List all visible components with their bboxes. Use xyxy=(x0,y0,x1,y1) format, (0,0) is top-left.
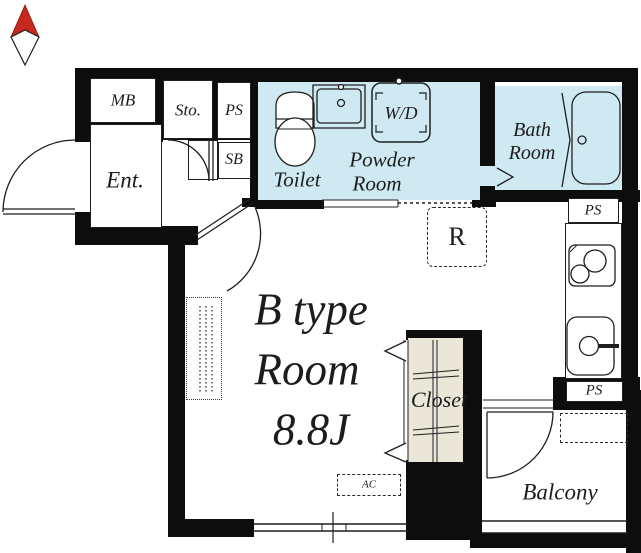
kitchen-counter xyxy=(565,223,622,379)
wall-bath-left-b xyxy=(480,186,495,202)
wall-bottom-left xyxy=(168,519,254,537)
wall-right-upper xyxy=(622,68,638,390)
wall-left-upper xyxy=(75,68,90,140)
label-pipe-space-top: PS xyxy=(225,103,243,119)
wall-balcony-bottom xyxy=(470,533,641,548)
north-compass-icon xyxy=(8,4,42,66)
label-refrigerator: R xyxy=(448,224,465,250)
label-room-word: Room xyxy=(255,348,360,393)
wall-main-left xyxy=(168,235,185,530)
label-ac: AC xyxy=(362,480,376,491)
floor-plan: MB Sto. PS SB Ent. Toilet Powder Room W/… xyxy=(0,0,641,553)
entrance-door xyxy=(3,140,75,214)
label-bath-2: Room xyxy=(509,143,556,163)
balcony-railing xyxy=(482,521,628,533)
label-entrance: Ent. xyxy=(106,169,144,192)
label-shoe-box: SB xyxy=(225,152,243,168)
label-powder-1: Powder xyxy=(349,150,414,171)
ladder-space xyxy=(186,297,222,400)
window-bottom xyxy=(254,512,408,543)
label-bath-1: Bath xyxy=(513,120,551,140)
wall-hall-toilet xyxy=(250,82,258,192)
label-balcony: Balcony xyxy=(522,481,597,504)
balcony-equipment-space xyxy=(560,413,628,443)
shoe-box-small xyxy=(188,140,218,180)
label-room-type: B type xyxy=(254,288,368,333)
label-toilet: Toilet xyxy=(273,170,320,191)
label-washer-dryer: W/D xyxy=(385,104,418,122)
label-room-size: 8.8J xyxy=(273,408,349,453)
wall-bath-left-a xyxy=(480,82,495,166)
label-closet: Closet xyxy=(411,389,467,411)
room-entry-door xyxy=(194,199,261,291)
label-storage: Sto. xyxy=(175,102,201,119)
wall-right-lower xyxy=(626,390,641,553)
powder-threshold xyxy=(322,200,472,207)
label-powder-2: Room xyxy=(353,174,402,195)
wall-below-closet xyxy=(406,460,482,540)
label-pipe-space-mid: PS xyxy=(585,204,602,219)
label-pipe-space-bottom: PS xyxy=(586,384,603,399)
balcony-door xyxy=(483,400,553,478)
bath-door-gap xyxy=(480,166,495,186)
label-meter-box: MB xyxy=(111,92,136,109)
